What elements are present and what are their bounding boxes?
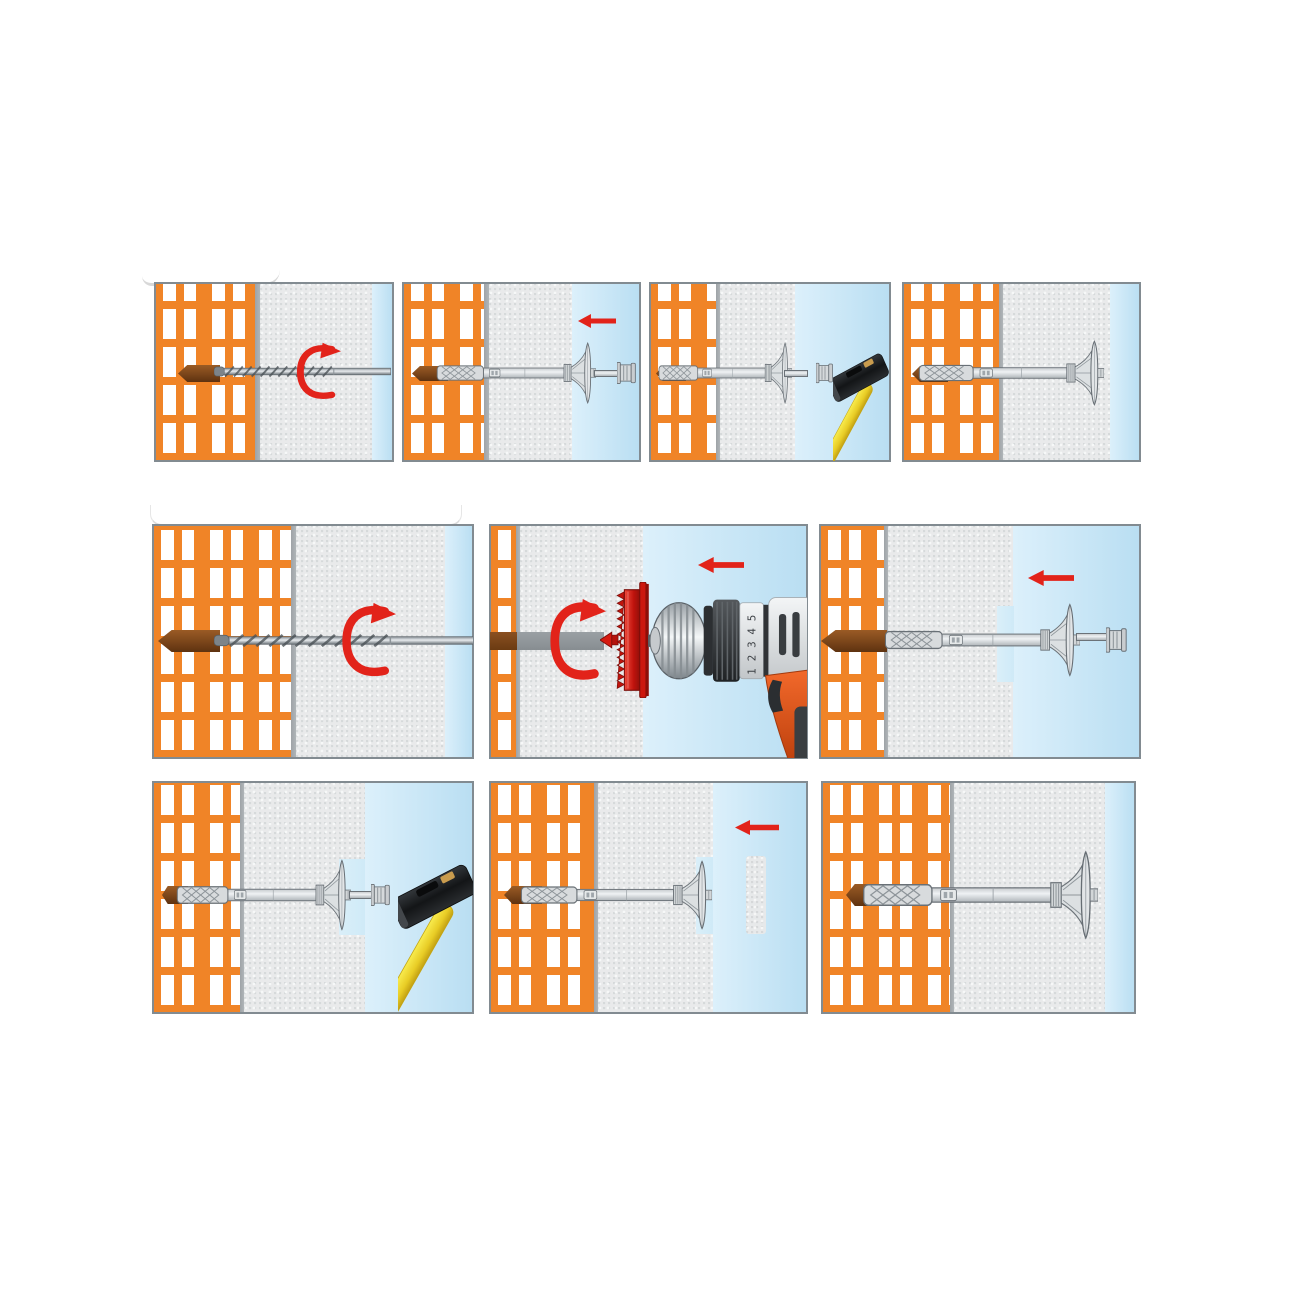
- hammer-illustration: [398, 860, 473, 1013]
- insulation-anchor-illustration: [520, 859, 712, 931]
- white-swoosh-middle: [150, 505, 462, 526]
- arrow-left-icon: [1028, 570, 1074, 586]
- panel-row1-installed: [903, 283, 1140, 461]
- cordless-drill-illustration: [648, 575, 807, 758]
- insulation-anchor-illustration: [918, 339, 1104, 407]
- installation-steps-diagram: 1 2 3 4 5: [0, 0, 1300, 1300]
- panel-row1-hammer-pin: [650, 283, 890, 461]
- panel-row1-drill-hole: [155, 283, 393, 461]
- anchor-pin-head: [816, 361, 834, 385]
- insulation-anchor-illustration: [176, 858, 351, 932]
- white-swoosh-top: [142, 259, 280, 286]
- anchor-pin: [594, 370, 618, 377]
- insulation-plug: [746, 856, 766, 934]
- panel-row2-drill-hole: [153, 525, 473, 758]
- arrow-left-icon: [698, 557, 744, 573]
- anchor-pin-head: [1106, 625, 1128, 655]
- anchor-pin: [784, 370, 808, 377]
- insulation-anchor-illustration: [436, 341, 596, 405]
- anchor-pin: [349, 891, 372, 899]
- drilled-hole-in-brick: [490, 632, 517, 650]
- plaster-layer: [1110, 283, 1140, 461]
- panel-row3-finished: [822, 782, 1135, 1013]
- insulation-anchor-illustration: [658, 341, 792, 405]
- insulation-anchor-illustration: [884, 602, 1080, 678]
- panel-row2-mill-recess: [490, 525, 807, 758]
- panel-row2-insert-anchor: [820, 525, 1140, 758]
- anchor-pin: [1076, 633, 1108, 641]
- rotation-arrow-icon: [340, 602, 396, 680]
- panel-row1-insert-anchor: [403, 283, 640, 461]
- rotation-arrow-icon: [548, 598, 606, 684]
- hammer-illustration: [833, 350, 890, 461]
- panel-row3-insert-plug: [490, 782, 807, 1013]
- arrow-left-icon: [578, 314, 616, 328]
- rotation-arrow-icon: [295, 342, 341, 402]
- plaster-layer: [1105, 782, 1135, 1013]
- anchor-pin-head: [371, 882, 391, 908]
- panel-row3-hammer-pin: [153, 782, 473, 1013]
- anchor-pin-head: [617, 360, 637, 386]
- insulation-anchor-illustration: [862, 849, 1098, 941]
- arrow-left-icon: [735, 820, 779, 835]
